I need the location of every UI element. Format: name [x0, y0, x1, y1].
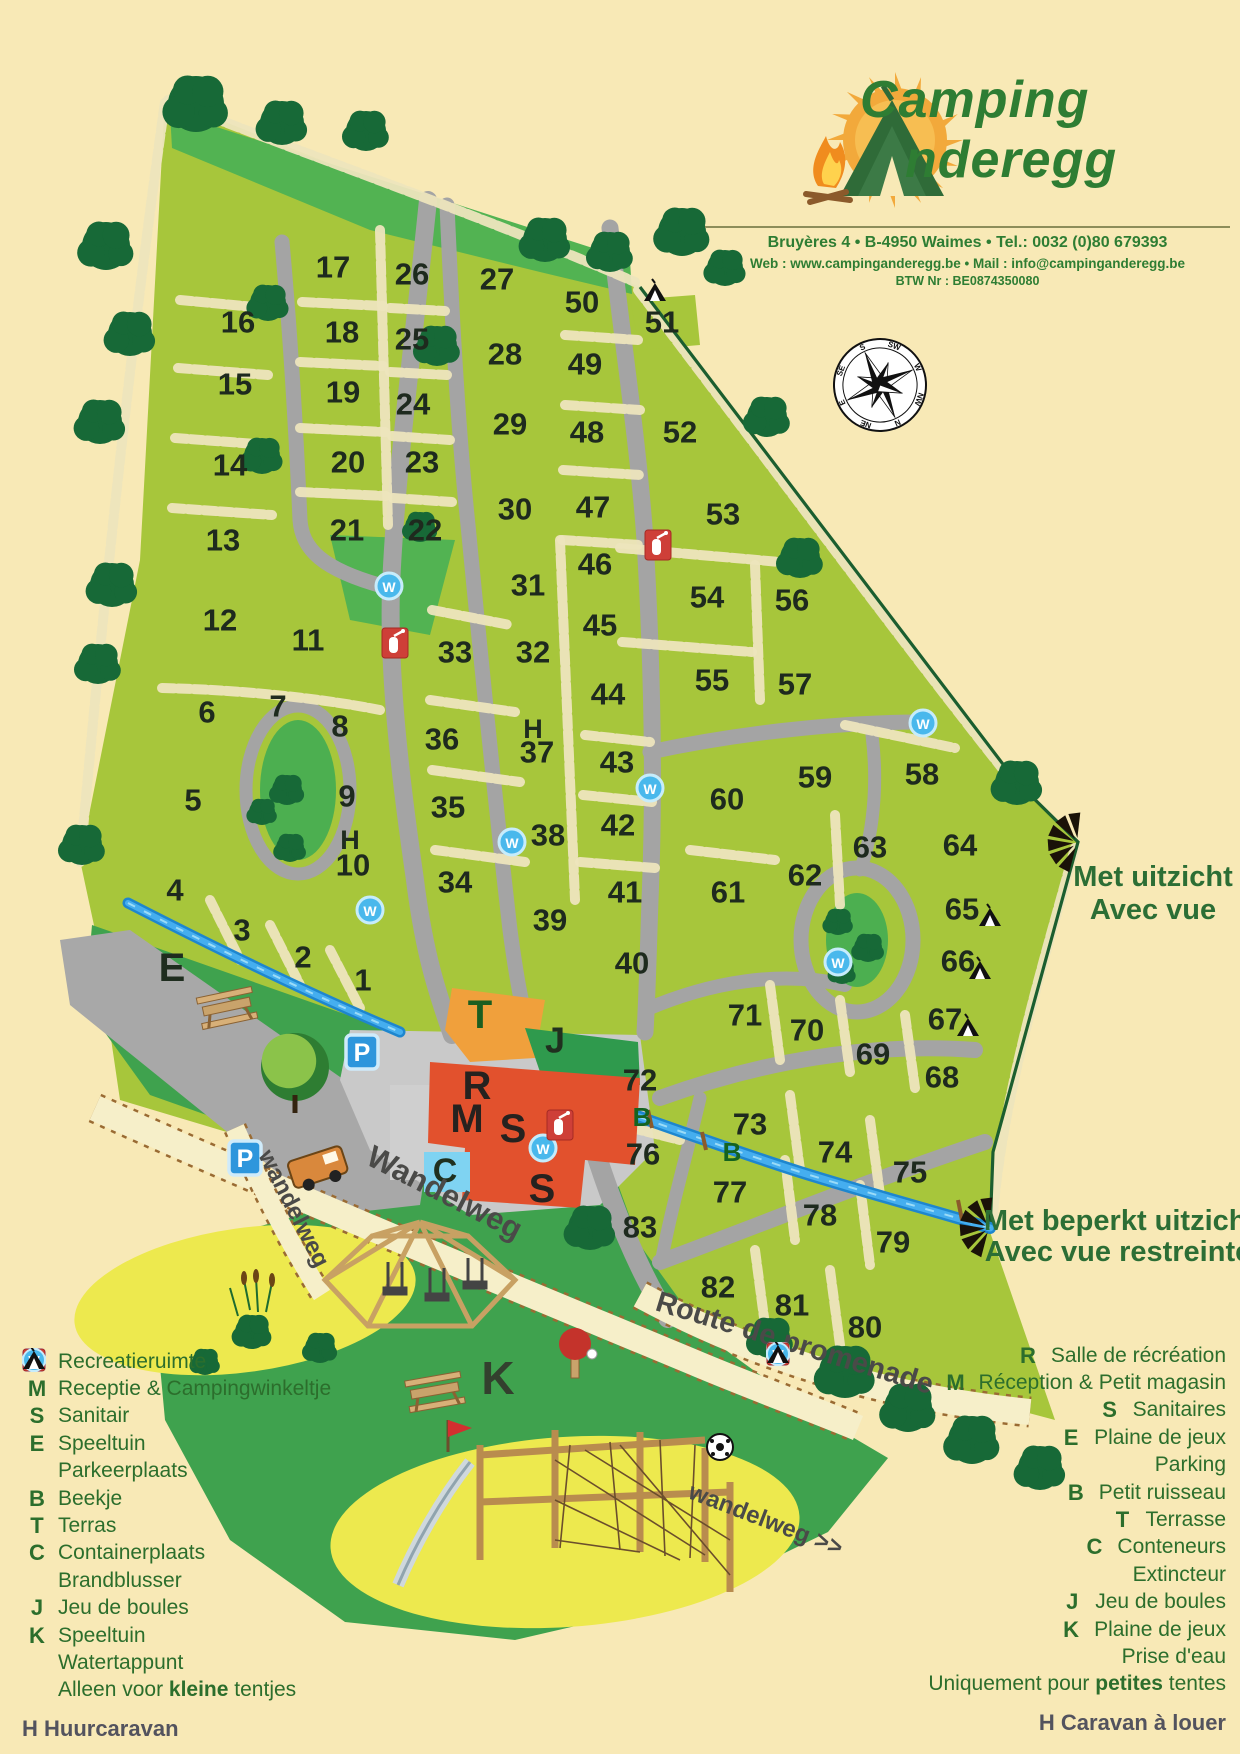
legend-label: Brandblusser: [58, 1569, 182, 1593]
legend-label: Sanitaires: [1133, 1398, 1226, 1422]
plot-number-56: 56: [775, 583, 809, 618]
legend-item-K: KPlaine de jeux: [766, 1616, 1226, 1643]
svg-text:W: W: [916, 716, 930, 732]
campground-map-page: 1234567891011121314151617181920212223242…: [0, 0, 1240, 1754]
legend-item-K: KSpeeltuin: [22, 1622, 352, 1649]
plot-number-62: 62: [788, 858, 822, 893]
svg-text:P: P: [354, 1039, 371, 1067]
plot-number-69: 69: [856, 1037, 890, 1072]
plot-number-46: 46: [578, 547, 612, 582]
legend-item-J: JJeu de boules: [22, 1595, 352, 1622]
facility-letter-K: K: [481, 1352, 514, 1404]
plot-number-76: 76: [626, 1137, 660, 1172]
plot-number-75: 75: [893, 1155, 927, 1190]
legend-label: Watertappunt: [58, 1651, 183, 1675]
facility-letter-M: M: [450, 1097, 483, 1141]
legend-item-tent: Alleen voor kleine tentjes: [22, 1677, 352, 1704]
tree-icon: [74, 400, 125, 444]
legend-label: Uniquement pour petites tentes: [928, 1672, 1226, 1696]
plot-number-14: 14: [213, 448, 248, 483]
plot-number-3: 3: [233, 913, 250, 948]
legend-label: Salle de récréation: [1051, 1344, 1226, 1368]
plot-number-53: 53: [706, 497, 740, 532]
facility-letter-B: B: [633, 1102, 652, 1132]
plot-number-20: 20: [331, 445, 365, 480]
plot-number-68: 68: [925, 1060, 959, 1095]
tree-icon: [743, 397, 790, 437]
plot-number-61: 61: [711, 875, 745, 910]
plot-number-6: 6: [198, 695, 215, 730]
legend-label: Alleen voor kleine tentjes: [58, 1678, 296, 1702]
legend-label: Extincteur: [1133, 1563, 1226, 1587]
plot-number-27: 27: [480, 262, 514, 297]
legend-label: Conteneurs: [1117, 1535, 1226, 1559]
legend-symbol-R: R: [1013, 1343, 1043, 1369]
plot-number-78: 78: [803, 1198, 837, 1233]
soccer-ball: [707, 1434, 733, 1460]
legend-label: Speeltuin: [58, 1432, 146, 1456]
plot-number-57: 57: [778, 667, 812, 702]
legend-label: Containerplaats: [58, 1541, 205, 1565]
legend-symbol-T: T: [1107, 1507, 1137, 1533]
vat-line: BTW Nr : BE0874350080: [700, 274, 1235, 288]
legend-symbol-M: M: [22, 1376, 52, 1402]
legend-symbol-J: J: [22, 1595, 52, 1621]
brand-word-camping: Camping: [860, 70, 1089, 130]
legend-item-water: WWatertappunt: [22, 1649, 352, 1676]
legend-symbol-M: M: [941, 1370, 971, 1396]
legend-label: Speeltuin: [58, 1624, 146, 1648]
svg-text:W: W: [643, 781, 657, 797]
legend-item-water: WPrise d'eau: [766, 1643, 1226, 1670]
tree-icon: [342, 111, 389, 151]
parking-sign-icon: P: [346, 1035, 378, 1069]
legend-symbol-B: B: [1061, 1480, 1091, 1506]
plot-number-74: 74: [818, 1135, 853, 1170]
plot-number-72: 72: [623, 1063, 657, 1098]
legend-item-E: EPlaine de jeux: [766, 1424, 1226, 1451]
legend-item-T: TTerras: [22, 1512, 352, 1539]
legend-item-B: BPetit ruisseau: [766, 1479, 1226, 1506]
svg-text:W: W: [363, 903, 377, 919]
facility-letter-T: T: [468, 993, 492, 1037]
legend-symbol-E: E: [22, 1431, 52, 1457]
legend-item-S: SSanitair: [22, 1403, 352, 1430]
legend-dutch: RRecreatieruimteMReceptie & Campingwinke…: [22, 1348, 352, 1742]
plot-number-49: 49: [568, 347, 602, 382]
legend-french: RSalle de récréationMRéception & Petit m…: [766, 1342, 1226, 1736]
plot-number-29: 29: [493, 407, 527, 442]
header-divider: [705, 226, 1230, 228]
plot-number-31: 31: [511, 568, 545, 603]
plot-number-15: 15: [218, 367, 252, 402]
water-tap-icon: W: [637, 775, 663, 801]
legend-label: Beekje: [58, 1487, 122, 1511]
plot-number-2: 2: [294, 940, 311, 975]
small-tent-icon: [22, 1348, 46, 1370]
legend-label-bold: kleine: [169, 1678, 229, 1701]
plot-number-34: 34: [438, 865, 473, 900]
legend-label: Receptie & Campingwinkeltje: [58, 1377, 331, 1401]
plot-number-55: 55: [695, 663, 729, 698]
tree-icon: [104, 312, 155, 356]
svg-text:W: W: [382, 579, 396, 595]
plot-number-17: 17: [316, 250, 350, 285]
legend-symbol-C: C: [22, 1540, 52, 1566]
plot-number-47: 47: [576, 490, 610, 525]
plot-number-59: 59: [798, 760, 832, 795]
address-line: Bruyères 4 • B-4950 Waimes • Tel.: 0032 …: [700, 234, 1235, 252]
legend-item-parking: PParking: [766, 1452, 1226, 1479]
plot-number-22: 22: [408, 513, 442, 548]
legend-label: Terras: [58, 1514, 116, 1538]
legend-symbol-K: K: [1056, 1617, 1086, 1643]
view-label: Met beperkt uitzicht: [984, 1205, 1240, 1237]
svg-text:W: W: [831, 955, 845, 971]
plot-number-36: 36: [425, 722, 459, 757]
plot-number-43: 43: [600, 745, 634, 780]
legend-label: Plaine de jeux: [1094, 1426, 1226, 1450]
plot-number-25: 25: [395, 322, 429, 357]
plot-number-41: 41: [608, 875, 642, 910]
legend-item-extinguisher: Extincteur: [766, 1561, 1226, 1588]
tree-icon: [586, 232, 633, 272]
legend-symbol-K: K: [22, 1623, 52, 1649]
plot-number-4: 4: [166, 873, 184, 908]
plot-number-1: 1: [354, 963, 371, 998]
plot-number-18: 18: [325, 315, 359, 350]
legend-symbol-B: B: [22, 1486, 52, 1512]
small-tent-icon: [766, 1342, 790, 1364]
brand-header: Camping nderegg Bruyères 4 • B-4950 Waim…: [700, 48, 1235, 298]
legend-label: Jeu de boules: [1095, 1590, 1226, 1614]
plot-number-11: 11: [292, 623, 325, 658]
plot-number-63: 63: [853, 830, 887, 865]
plot-number-24: 24: [396, 387, 431, 422]
plot-number-12: 12: [203, 603, 237, 638]
water-tap-icon: W: [825, 949, 851, 975]
view-label: Avec vue: [1090, 894, 1216, 926]
web-mail-line: Web : www.campinganderegg.be • Mail : in…: [700, 256, 1235, 271]
svg-text:P: P: [237, 1145, 254, 1173]
water-tap-icon: W: [357, 897, 383, 923]
legend-item-extinguisher: Brandblusser: [22, 1567, 352, 1594]
legend-symbol-T: T: [22, 1513, 52, 1539]
plot-number-83: 83: [623, 1210, 657, 1245]
legend-item-T: TTerrasse: [766, 1506, 1226, 1533]
facility-letter-H: H: [340, 825, 360, 855]
plot-number-79: 79: [876, 1225, 910, 1260]
svg-text:W: W: [536, 1141, 550, 1157]
plot-number-50: 50: [565, 285, 599, 320]
legend-label: Plaine de jeux: [1094, 1618, 1226, 1642]
facility-letter-B: B: [723, 1137, 742, 1167]
legend-label: Petit ruisseau: [1099, 1481, 1226, 1505]
legend-label: Recreatieruimte: [58, 1350, 206, 1374]
view-label: Met uitzicht: [1073, 861, 1233, 893]
plot-number-81: 81: [775, 1288, 809, 1323]
plot-number-35: 35: [431, 790, 465, 825]
facility-letter-H: H: [523, 714, 543, 744]
plot-number-21: 21: [330, 513, 364, 548]
plot-number-58: 58: [905, 757, 939, 792]
plot-number-32: 32: [516, 635, 550, 670]
legend-symbol-S: S: [22, 1403, 52, 1429]
water-tap-icon: W: [376, 573, 402, 599]
plot-number-77: 77: [713, 1175, 747, 1210]
plot-number-7: 7: [269, 689, 286, 724]
legend-item-tent: Uniquement pour petites tentes: [766, 1671, 1226, 1698]
legend-item-R: RSalle de récréation: [766, 1342, 1226, 1369]
compass-rose: NNEESESSWWNW: [819, 324, 941, 446]
plot-number-65: 65: [945, 892, 979, 927]
legend-item-S: SSanitaires: [766, 1397, 1226, 1424]
plot-number-26: 26: [395, 257, 429, 292]
plot-number-39: 39: [533, 903, 567, 938]
plot-number-70: 70: [790, 1013, 824, 1048]
plot-number-8: 8: [331, 709, 348, 744]
plot-number-42: 42: [601, 808, 635, 843]
legend-item-R: RRecreatieruimte: [22, 1348, 352, 1375]
fire-extinguisher-icon: [645, 530, 671, 560]
legend-item-M: MRéception & Petit magasin: [766, 1369, 1226, 1396]
legend-label: Jeu de boules: [58, 1596, 189, 1620]
tree-icon: [519, 218, 570, 262]
plot-number-30: 30: [498, 492, 532, 527]
plot-number-38: 38: [531, 818, 565, 853]
compass-rose: NNEESESSWWNW: [819, 324, 941, 446]
legend-dutch-footer: H Huurcaravan: [22, 1716, 352, 1742]
legend-item-M: MReceptie & Campingwinkeltje: [22, 1375, 352, 1402]
tree-icon: [74, 644, 121, 684]
plot-number-19: 19: [326, 375, 360, 410]
fire-extinguisher-icon: [382, 628, 408, 658]
legend-label-bold: petites: [1095, 1672, 1163, 1695]
facility-letter-J: J: [545, 1020, 565, 1061]
legend-symbol-J: J: [1057, 1589, 1087, 1615]
legend-label: Parkeerplaats: [58, 1459, 188, 1483]
legend-symbol-S: S: [1095, 1397, 1125, 1423]
plot-number-54: 54: [690, 580, 725, 615]
legend-item-C: CContainerplaats: [22, 1540, 352, 1567]
legend-item-E: ESpeeltuin: [22, 1430, 352, 1457]
legend-item-parking: PParkeerplaats: [22, 1458, 352, 1485]
legend-label: Réception & Petit magasin: [979, 1371, 1226, 1395]
legend-label: Parking: [1155, 1453, 1226, 1477]
plot-number-40: 40: [615, 946, 649, 981]
plot-number-23: 23: [405, 445, 439, 480]
svg-text:W: W: [505, 835, 519, 851]
legend-item-J: JJeu de boules: [766, 1589, 1226, 1616]
brand-word-anderegg: nderegg: [905, 130, 1117, 190]
plot-number-64: 64: [943, 828, 978, 863]
plot-number-66: 66: [941, 944, 975, 979]
tree-icon: [77, 222, 133, 270]
plot-number-45: 45: [583, 608, 617, 643]
legend-symbol-E: E: [1056, 1425, 1086, 1451]
plot-number-16: 16: [221, 305, 255, 340]
facility-letter-S: S: [529, 1167, 556, 1211]
plot-number-52: 52: [663, 415, 697, 450]
legend-label: Terrasse: [1145, 1508, 1226, 1532]
plot-number-60: 60: [710, 782, 744, 817]
plot-number-48: 48: [570, 415, 604, 450]
water-tap-icon: W: [499, 829, 525, 855]
facility-letter-E: E: [159, 946, 186, 990]
legend-symbol-C: C: [1079, 1534, 1109, 1560]
legend-item-B: BBeekje: [22, 1485, 352, 1512]
water-tap-icon: W: [910, 710, 936, 736]
view-label: Avec vue restreinte: [985, 1236, 1240, 1268]
small-tent-icon: [644, 279, 666, 301]
plot-number-28: 28: [488, 337, 522, 372]
plot-number-44: 44: [591, 677, 626, 712]
plot-number-80: 80: [848, 1310, 882, 1345]
facility-letter-S: S: [500, 1107, 527, 1151]
plot-number-5: 5: [184, 783, 201, 818]
plot-number-33: 33: [438, 635, 472, 670]
tree-icon: [86, 563, 137, 607]
plot-number-71: 71: [728, 998, 762, 1033]
plot-number-51: 51: [645, 305, 679, 340]
tree-icon: [256, 101, 307, 145]
tree-icon: [58, 825, 105, 865]
fire-extinguisher-icon: [547, 1110, 573, 1140]
legend-label: Sanitair: [58, 1404, 129, 1428]
legend-label: Prise d'eau: [1122, 1645, 1226, 1669]
legend-item-C: CConteneurs: [766, 1534, 1226, 1561]
plot-number-13: 13: [206, 523, 240, 558]
plot-number-9: 9: [338, 779, 355, 814]
tree-icon: [162, 75, 228, 132]
plot-number-67: 67: [928, 1002, 962, 1037]
legend-french-footer: H Caravan à louer: [766, 1710, 1226, 1736]
